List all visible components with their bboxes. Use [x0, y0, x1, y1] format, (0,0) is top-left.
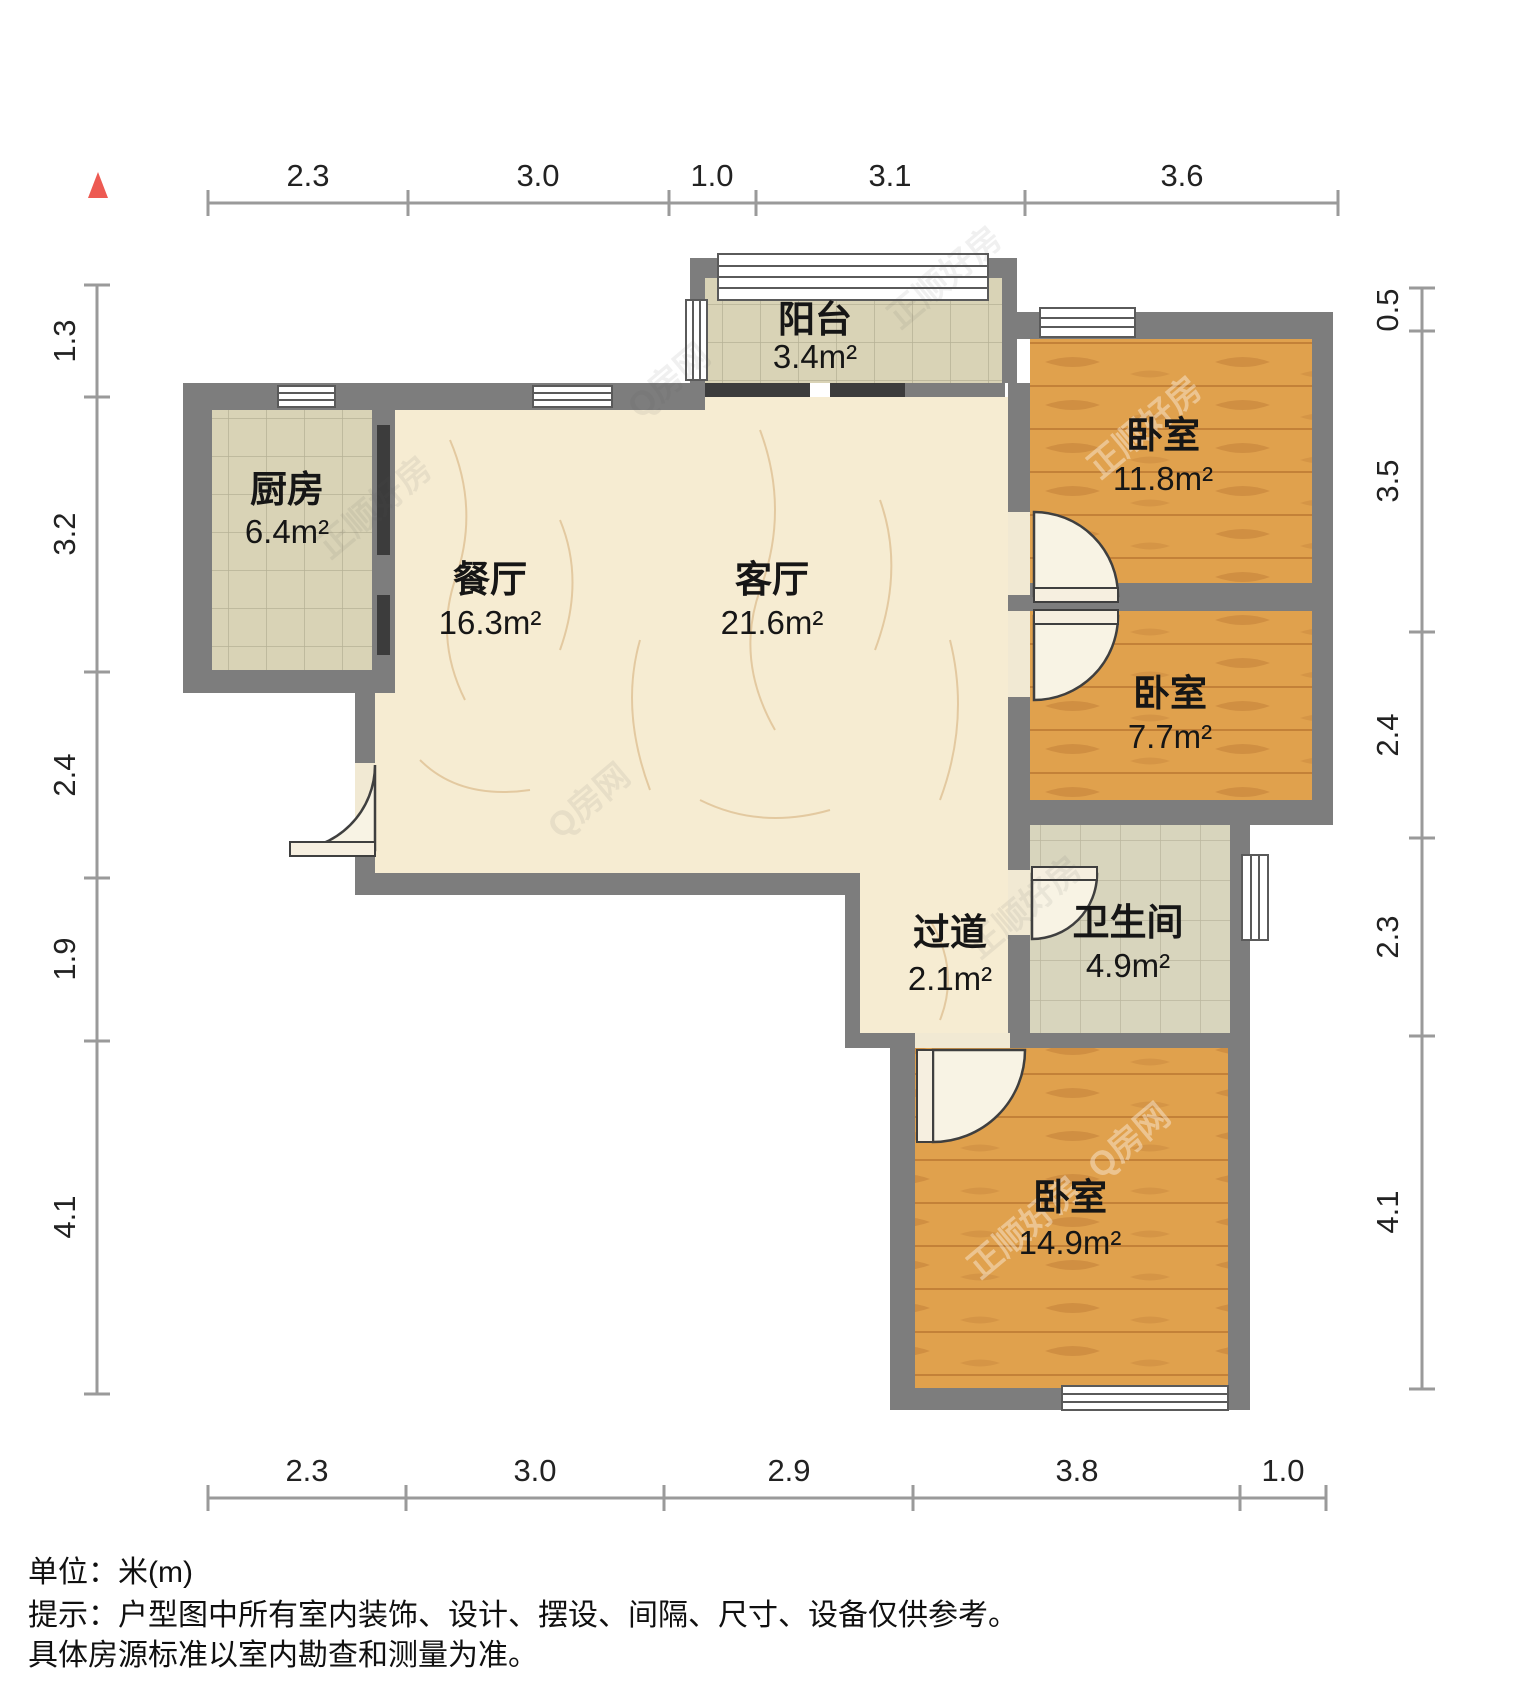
dim-left-1: 1.3	[47, 319, 82, 362]
living-label: 客厅	[735, 559, 809, 600]
dining-window	[533, 386, 612, 407]
dim-top-1: 2.3	[286, 158, 329, 193]
footer-notes: 单位：米(m) 提示：户型图中所有室内装饰、设计、摆设、间隔、尺寸、设备仅供参考…	[28, 1556, 1018, 1672]
footer-tip-line2: 具体房源标准以室内勘查和测量为准。	[28, 1639, 538, 1672]
dim-right-4: 2.3	[1370, 915, 1405, 958]
dim-bottom-3: 2.9	[767, 1453, 810, 1488]
balcony-label: 阳台	[778, 299, 852, 340]
dim-bottom-5: 1.0	[1261, 1453, 1304, 1488]
dim-left-5: 4.1	[47, 1195, 82, 1238]
bedroom-top-label: 卧室	[1126, 414, 1200, 456]
dim-right-3: 2.4	[1370, 713, 1405, 756]
bathroom-window	[1242, 855, 1268, 940]
bedroom-mid-area: 7.7m²	[1128, 718, 1212, 755]
dim-right-1: 0.5	[1370, 288, 1405, 331]
bedroom-top-window	[1040, 308, 1135, 337]
dimension-bottom: 2.3 3.0 2.9 3.8 1.0	[208, 1453, 1326, 1511]
dim-bottom-2: 3.0	[513, 1453, 556, 1488]
dimension-right: 0.5 3.5 2.4 2.3 4.1	[1370, 288, 1435, 1389]
floorplan-canvas: 2.3 3.0 1.0 3.1 3.6 1.3 3.2 2.4 1.9 4.1 …	[0, 0, 1523, 1688]
bathroom-label: 卫生间	[1073, 902, 1184, 943]
dim-top-5: 3.6	[1160, 158, 1203, 193]
hallway-label: 过道	[913, 912, 987, 953]
bedroom-bottom-area: 14.9m²	[1019, 1224, 1122, 1261]
dim-top-4: 3.1	[868, 158, 911, 193]
hallway-area: 2.1m²	[908, 960, 992, 997]
dim-right-2: 3.5	[1370, 459, 1405, 502]
kitchen-slider-bottom	[377, 595, 390, 655]
dim-top-2: 3.0	[516, 158, 559, 193]
bathroom-area: 4.9m²	[1086, 947, 1170, 984]
dim-top-3: 1.0	[690, 158, 733, 193]
dim-bottom-1: 2.3	[285, 1453, 328, 1488]
balcony-slider-left	[705, 383, 810, 397]
kitchen-window	[278, 386, 335, 407]
bedroom-bottom-window	[1062, 1386, 1228, 1410]
dining-label: 餐厅	[453, 559, 527, 600]
dim-bottom-4: 3.8	[1055, 1453, 1098, 1488]
bedroom-bottom-label: 卧室	[1033, 1176, 1107, 1218]
dim-left-4: 1.9	[47, 937, 82, 980]
balcony-area: 3.4m²	[773, 338, 857, 375]
balcony-slider-right	[830, 383, 905, 397]
dimension-top: 2.3 3.0 1.0 3.1 3.6	[208, 158, 1338, 216]
dining-area: 16.3m²	[439, 604, 542, 641]
living-area: 21.6m²	[721, 604, 824, 641]
north-arrow-icon	[88, 172, 108, 198]
dimension-left: 1.3 3.2 2.4 1.9 4.1	[47, 285, 110, 1394]
footer-unit: 单位：米(m)	[28, 1556, 193, 1589]
kitchen-label: 厨房	[250, 469, 324, 510]
dim-left-2: 3.2	[47, 512, 82, 555]
dim-right-5: 4.1	[1370, 1190, 1405, 1233]
dim-left-3: 2.4	[47, 753, 82, 796]
bedroom-top-area: 11.8m²	[1113, 460, 1213, 497]
kitchen-area: 6.4m²	[245, 513, 329, 550]
footer-tip-line1: 提示：户型图中所有室内装饰、设计、摆设、间隔、尺寸、设备仅供参考。	[28, 1599, 1018, 1632]
bedroom-mid-label: 卧室	[1133, 672, 1207, 714]
